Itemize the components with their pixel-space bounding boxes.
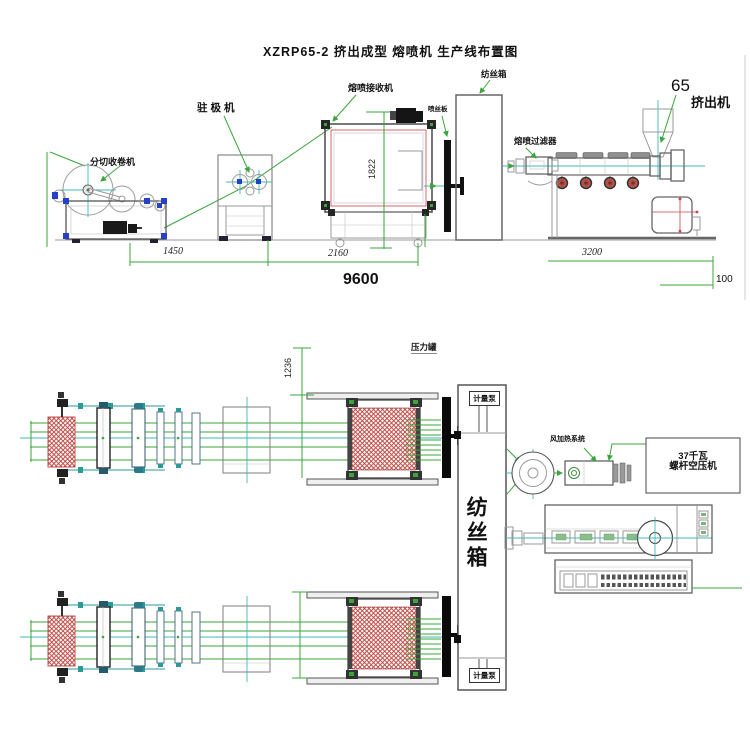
extruder-plan — [506, 505, 712, 559]
plan-view — [20, 348, 742, 690]
slitter-winder-elevation — [52, 163, 167, 243]
drawing-canvas — [0, 0, 750, 738]
label-spinning-box-plan: 纺丝箱 — [464, 496, 487, 571]
label-meltblown-receiver: 熔喷接收机 — [348, 84, 393, 94]
dim-1822: 1822 — [368, 154, 378, 184]
drawing-page: XZRP65-2 挤出成型 熔喷机 生产线布置图 分切收卷机 驻极机 熔喷接收机… — [0, 0, 750, 738]
dim-100: 100 — [716, 274, 733, 285]
label-electret-machine: 驻极机 — [197, 103, 238, 115]
spinning-box-elevation — [456, 95, 502, 240]
label-metering-pump-bottom: 计量泵 — [469, 668, 500, 683]
label-metering-pump-top: 计量泵 — [469, 391, 500, 406]
label-air-heating-system: 风加热系统 — [550, 436, 585, 444]
meltblown-receiver-elevation — [321, 108, 436, 247]
electret-machine-elevation — [218, 155, 272, 241]
label-compressor: 37千瓦 螺杆空压机 — [648, 452, 738, 473]
label-meltblown-filter: 熔喷过滤器 — [514, 137, 557, 146]
label-spinning-box-elevation: 纺丝箱 — [481, 70, 507, 79]
plan-row-machines — [20, 392, 461, 485]
label-extruder: 挤出机 — [691, 96, 730, 110]
dim-1236: 1236 — [284, 353, 294, 383]
ground-line — [55, 55, 745, 300]
drawing-title: XZRP65-2 挤出成型 熔喷机 生产线布置图 — [263, 46, 518, 60]
label-pressure-tank: 压力罐 — [411, 343, 437, 354]
meltblown-filter-elevation — [502, 157, 558, 185]
label-extruder-size: 65 — [671, 77, 690, 96]
label-compressor-line2: 螺杆空压机 — [648, 462, 738, 472]
label-spinneret-plate: 喷丝板 — [428, 106, 448, 113]
dim-2160: 2160 — [328, 248, 348, 259]
elevation-view — [47, 55, 745, 300]
dim-9600: 9600 — [343, 271, 379, 289]
air-heater-plan — [565, 444, 646, 485]
label-slitter-winder: 分切收卷机 — [90, 158, 135, 168]
spinneret-bar-elevation — [424, 140, 464, 232]
dim-3200: 3200 — [582, 247, 602, 258]
control-cabinet-plan — [555, 560, 742, 593]
dim-1450: 1450 — [163, 246, 183, 257]
extruder-elevation — [540, 100, 705, 238]
